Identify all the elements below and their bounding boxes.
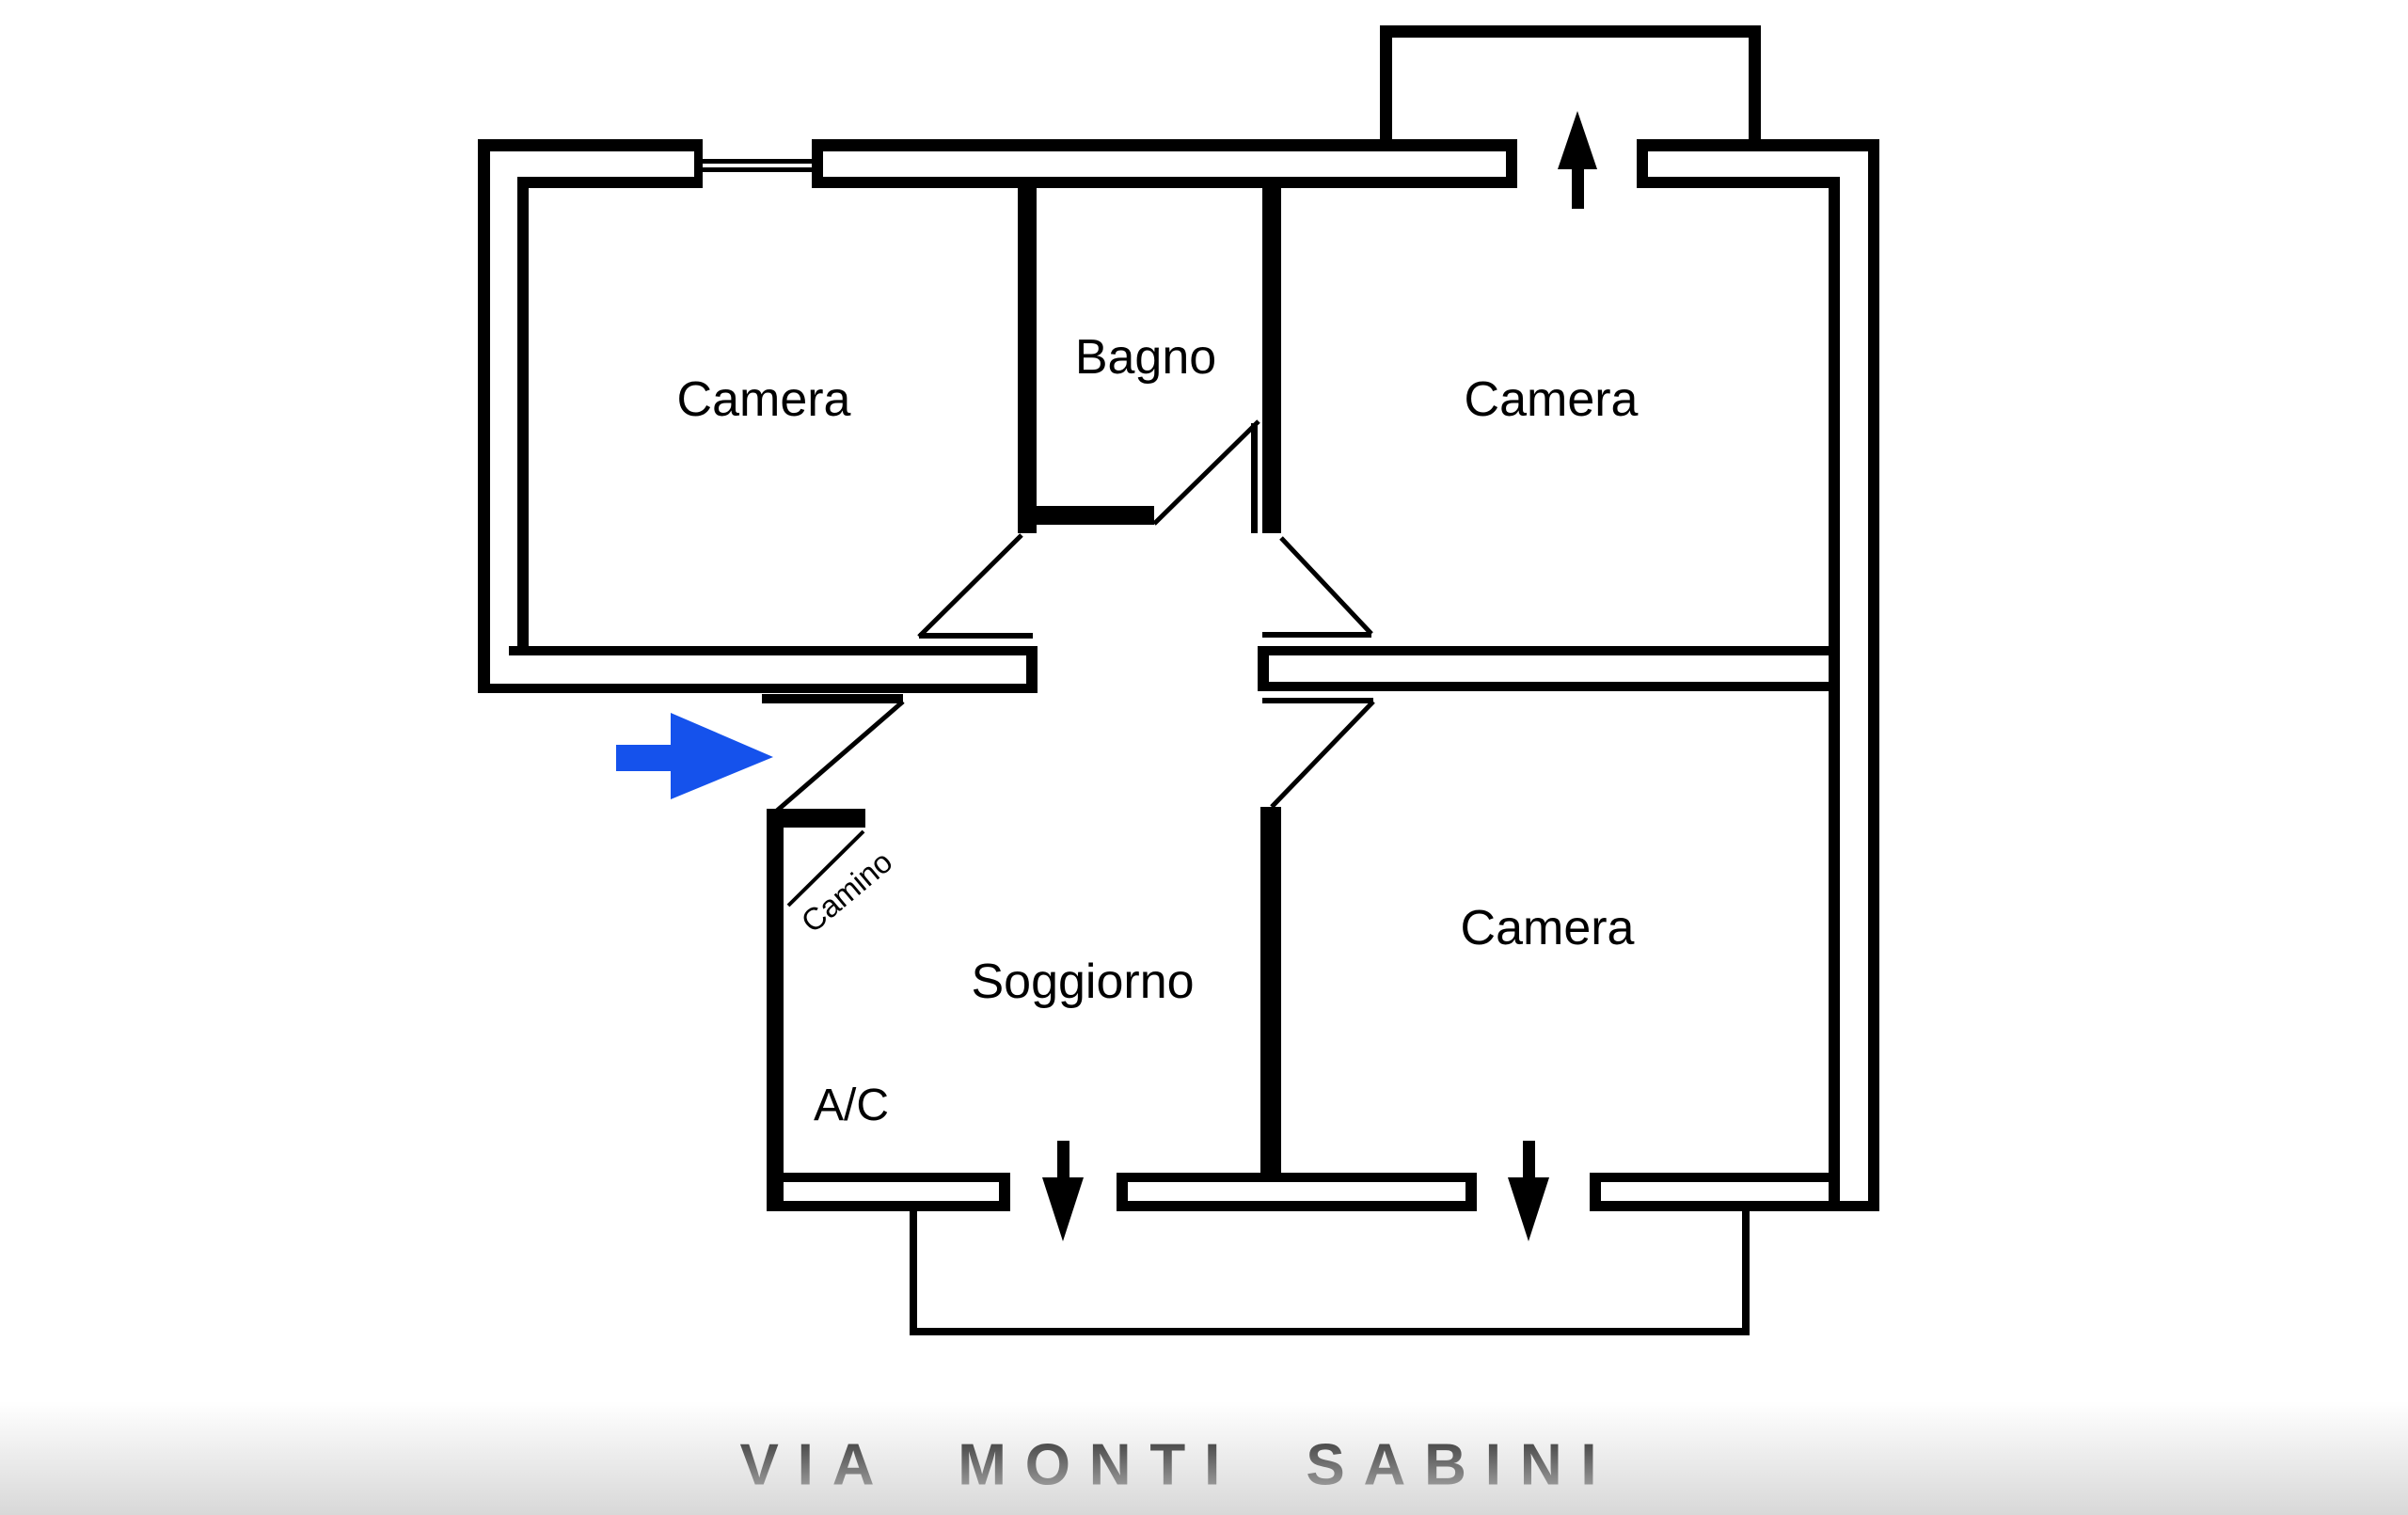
balcony-door-jamb-right <box>1637 139 1648 188</box>
balcony-door-jamb-left <box>1506 139 1517 188</box>
wall-bottom-bottom-3 <box>1590 1201 1879 1211</box>
wall-hall-left-cap <box>1026 646 1038 693</box>
balcony-top-left-wall <box>1380 25 1392 139</box>
balcony-bottom-bottom-wall <box>910 1328 1750 1335</box>
wall-bottom-top-3 <box>1590 1173 1829 1182</box>
floorplan-drawing <box>0 0 2408 1515</box>
wall-bottom-cap-2 <box>1117 1173 1128 1211</box>
wall-hall-right-top <box>1258 646 1829 655</box>
wall-top-outer-3 <box>1637 139 1879 151</box>
door-swing-entrance <box>777 702 903 811</box>
wall-top-inner-2 <box>812 177 1517 188</box>
room-label-soggiorno: Soggiorno <box>971 957 1194 1006</box>
door-leaf-camera-right-top <box>1262 632 1371 638</box>
wall-hall-left-bottom <box>478 684 1038 693</box>
wall-bottom-bottom-2 <box>1117 1201 1477 1211</box>
window-jamb-left <box>694 139 703 188</box>
wall-left-outer <box>478 139 490 693</box>
down-arrow-icon-right <box>1508 1141 1549 1241</box>
balcony-top-right-wall <box>1749 25 1761 139</box>
window-line-bottom <box>703 167 812 172</box>
wall-right-outer <box>1868 139 1879 1211</box>
wall-bagno-right <box>1262 188 1281 533</box>
wall-right-inner <box>1829 177 1840 1211</box>
wall-bottom-cap-4 <box>1590 1173 1601 1211</box>
down-arrow-icon-left <box>1042 1141 1084 1241</box>
wall-top-inner-3 <box>1637 177 1829 188</box>
door-leaf-camera-right-bottom <box>1262 698 1373 703</box>
wall-top-outer-2 <box>812 139 1517 151</box>
floorplan-page: Camera Bagno Camera Camera Soggiorno Cam… <box>0 0 2408 1515</box>
room-label-camera-bottom-right: Camera <box>1461 904 1635 953</box>
door-swing-bagno <box>1154 421 1259 524</box>
wall-left-inner <box>517 177 529 655</box>
window-line-top <box>703 159 812 164</box>
door-leaf-bagno <box>1251 423 1258 533</box>
street-label: VIA MONTI SABINI <box>739 1432 1615 1499</box>
wall-bottom-bottom-1 <box>767 1201 1010 1211</box>
outer-walls <box>478 139 1879 1211</box>
wall-bottom-cap-1 <box>999 1173 1010 1211</box>
window-jamb-right <box>812 139 823 188</box>
wall-soggiorno-west <box>767 809 784 1211</box>
door-swings <box>777 421 1373 906</box>
wall-hall-left-top <box>509 646 1038 655</box>
up-arrow-icon <box>1558 111 1597 209</box>
door-swing-camera-right-top <box>1281 538 1371 634</box>
wall-hall-right-bottom <box>1258 682 1829 691</box>
wall-entrance-stub <box>762 694 903 703</box>
wall-bottom-top-1 <box>767 1173 1010 1182</box>
balcony-top-top-wall <box>1380 25 1761 38</box>
wall-camino-top <box>767 809 865 828</box>
balcony-bottom-left-wall <box>910 1211 917 1335</box>
wall-top-outer-1 <box>478 139 703 151</box>
balcony-bottom-right-wall <box>1742 1211 1750 1335</box>
wall-hall-right-cap <box>1258 646 1269 691</box>
wall-bottom-cap-3 <box>1465 1173 1477 1211</box>
wall-top-inner-1 <box>517 177 703 188</box>
door-swing-camera-right-bottom <box>1272 702 1373 807</box>
door-leaf-camera-left <box>919 633 1033 639</box>
wall-bagno-south <box>1018 506 1154 525</box>
room-label-camera-top-right: Camera <box>1465 375 1639 424</box>
annotation-ac-unit: A/C <box>814 1083 889 1128</box>
wall-bottom-top-2 <box>1117 1173 1477 1182</box>
door-swing-camera-left <box>919 535 1022 637</box>
wall-soggiorno-camera-divider <box>1260 807 1281 1177</box>
entrance-arrow-icon <box>616 713 773 799</box>
access-arrows <box>1042 111 1597 1241</box>
room-label-bagno: Bagno <box>1075 333 1216 382</box>
room-label-camera-top-left: Camera <box>677 375 851 424</box>
wall-bagno-left <box>1018 188 1037 533</box>
